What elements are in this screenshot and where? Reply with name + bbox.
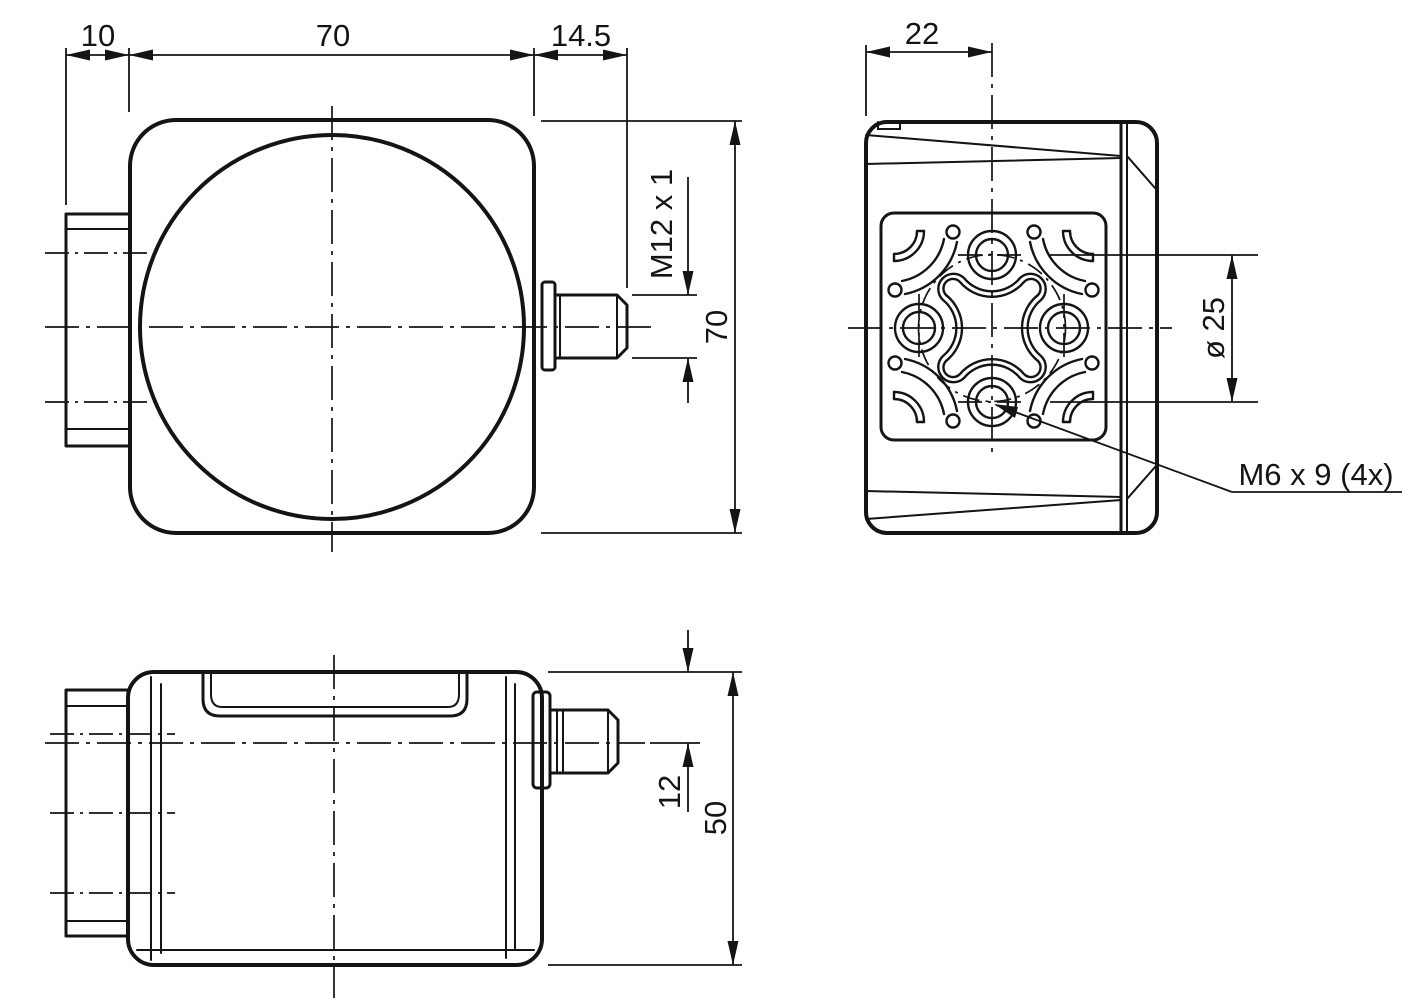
rear-view: 22 ø 25 M6 x 9 (4x): [848, 16, 1402, 533]
dim-label-d25: ø 25: [1196, 297, 1231, 359]
dim-top-chain: 10 70 14.5: [66, 18, 627, 288]
dim-m12-thread: M12 x 1: [632, 169, 697, 403]
terminal-block-front: [66, 214, 130, 446]
dim-label-10: 10: [81, 18, 115, 53]
dim-12: 12: [548, 630, 742, 812]
dim-label-50: 50: [698, 801, 733, 835]
technical-drawing-page: 10 70 14.5 M12 x 1 70: [0, 0, 1417, 1004]
front-view: 10 70 14.5 M12 x 1 70: [45, 18, 742, 552]
label-m6x9: M6 x 9 (4x): [1238, 457, 1393, 492]
dim-label-12: 12: [652, 775, 687, 809]
leader-m6-holes: M6 x 9 (4x): [994, 404, 1402, 492]
dim-label-70-width: 70: [316, 18, 350, 53]
sensor-dimensional-drawing: 10 70 14.5 M12 x 1 70: [0, 0, 1417, 1004]
dim-22: 22: [866, 16, 992, 116]
dim-label-22: 22: [905, 16, 939, 51]
side-view: 12 50: [45, 630, 742, 998]
side-body-detail: [137, 673, 534, 960]
mounting-recess-panel: [881, 213, 1106, 440]
corner-ornament: [889, 226, 960, 297]
dim-label-70-height: 70: [699, 310, 734, 344]
rear-centerlines: [848, 43, 1172, 456]
m12-connector-side: [533, 692, 618, 788]
dim-label-m12x1: M12 x 1: [644, 169, 679, 279]
m12-connector-front: [542, 282, 627, 370]
dim-label-14-5: 14.5: [551, 18, 611, 53]
dim-50: 50: [548, 672, 742, 965]
